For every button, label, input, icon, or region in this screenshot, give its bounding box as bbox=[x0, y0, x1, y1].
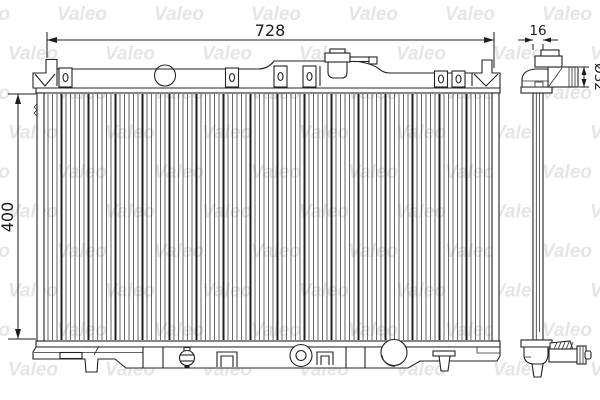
drain-plug-circle bbox=[180, 351, 195, 366]
radiator-technical-drawing: ValeoValeoValeoValeoValeoValeoValeoValeo… bbox=[0, 0, 600, 400]
side-bottom-dome bbox=[524, 347, 548, 364]
valeo-watermark: Valeo bbox=[0, 4, 10, 25]
side-core bbox=[533, 93, 543, 340]
arrowhead-top bbox=[582, 67, 587, 75]
right-side-plate bbox=[492, 93, 499, 341]
inlet-pipe bbox=[548, 67, 578, 87]
hose-clamp bbox=[435, 71, 448, 87]
valeo-watermark: Valeo bbox=[590, 360, 600, 381]
filler-cap-top bbox=[330, 49, 345, 53]
valeo-watermark: Valeo bbox=[251, 162, 301, 183]
valeo-watermark: Valeo bbox=[0, 320, 10, 341]
hose-clamp bbox=[59, 68, 72, 87]
valeo-watermark: Valeo bbox=[8, 360, 58, 381]
valeo-watermark: Valeo bbox=[299, 202, 349, 223]
valeo-watermark: Valeo bbox=[445, 162, 495, 183]
valeo-watermark: Valeo bbox=[154, 4, 204, 25]
valeo-watermark: Valeo bbox=[542, 162, 592, 183]
arrowhead-top bbox=[15, 94, 21, 104]
valeo-watermark: Valeo bbox=[396, 44, 446, 65]
valeo-watermark: Valeo bbox=[105, 44, 155, 65]
arrowhead-left bbox=[47, 37, 57, 43]
valeo-watermark: Valeo bbox=[202, 202, 252, 223]
valeo-watermark: Valeo bbox=[105, 281, 155, 302]
bottom-bracket-bar bbox=[433, 351, 455, 356]
valeo-watermark: Valeo bbox=[0, 241, 10, 262]
valeo-watermark: Valeo bbox=[57, 320, 107, 341]
valeo-watermark: Valeo bbox=[590, 202, 600, 223]
valeo-watermark: Valeo bbox=[8, 281, 58, 302]
valeo-watermark: Valeo bbox=[542, 320, 592, 341]
valeo-watermark: Valeo bbox=[590, 123, 600, 144]
arrowhead-right bbox=[484, 37, 494, 43]
valeo-watermark: Valeo bbox=[251, 241, 301, 262]
pipe-diameter-label: Ø32 bbox=[591, 63, 600, 91]
side-top-flange bbox=[521, 87, 552, 93]
valeo-watermark: Valeo bbox=[105, 123, 155, 144]
valeo-watermark: Valeo bbox=[542, 4, 592, 25]
valeo-watermark: Valeo bbox=[202, 123, 252, 144]
filler-cap-body bbox=[325, 53, 350, 62]
valeo-watermark: Valeo bbox=[348, 320, 398, 341]
valeo-watermark: Valeo bbox=[57, 4, 107, 25]
side-top-dome bbox=[522, 69, 549, 87]
valeo-watermark: Valeo bbox=[299, 281, 349, 302]
height-dimension-label: 400 bbox=[0, 202, 17, 233]
valeo-watermark: Valeo bbox=[445, 4, 495, 25]
side-cap-top bbox=[541, 50, 559, 56]
width-dimension-label: 728 bbox=[255, 21, 286, 40]
valeo-watermark: Valeo bbox=[348, 162, 398, 183]
outlet-pipe-nub bbox=[585, 351, 591, 359]
outlet-pipe bbox=[549, 349, 579, 362]
valeo-watermark: Valeo bbox=[57, 162, 107, 183]
valeo-watermark: Valeo bbox=[590, 44, 600, 65]
valeo-watermark: Valeo bbox=[348, 241, 398, 262]
hose-clamp bbox=[303, 66, 316, 87]
side-bottom-flange bbox=[521, 340, 552, 347]
valeo-watermark: Valeo bbox=[251, 320, 301, 341]
front-view: 728 400 bbox=[0, 21, 500, 372]
side-bottom-tab bbox=[532, 364, 543, 377]
valeo-watermark: Valeo bbox=[202, 281, 252, 302]
valeo-watermark: Valeo bbox=[202, 44, 252, 65]
overflow-tube bbox=[350, 57, 370, 62]
hose-clamp bbox=[452, 71, 465, 87]
overflow-tube-tip bbox=[369, 57, 377, 64]
filler-neck-body bbox=[328, 62, 347, 78]
valeo-watermark: Valeo bbox=[105, 202, 155, 223]
left-side-plate bbox=[37, 93, 44, 341]
valeo-watermark: Valeo bbox=[348, 4, 398, 25]
side-cap-body bbox=[535, 56, 562, 67]
hose-clamp bbox=[226, 68, 239, 87]
arrowhead-bottom bbox=[15, 329, 21, 339]
bottom-bracket-bar bbox=[60, 353, 82, 359]
hose-clamp bbox=[274, 66, 287, 87]
valeo-watermark: Valeo bbox=[445, 320, 495, 341]
valeo-watermark: Valeo bbox=[542, 241, 592, 262]
sensor-port-outer bbox=[290, 345, 312, 367]
valeo-watermark: Valeo bbox=[299, 123, 349, 144]
valeo-watermark: Valeo bbox=[0, 162, 10, 183]
drain-plug-nub bbox=[185, 365, 190, 369]
bottom-bracket-tab bbox=[439, 356, 450, 371]
valeo-watermark: Valeo bbox=[8, 123, 58, 144]
valeo-watermark: Valeo bbox=[445, 241, 495, 262]
valeo-watermark: Valeo bbox=[590, 281, 600, 302]
valeo-watermark: Valeo bbox=[57, 241, 107, 262]
bottom-header-plate bbox=[36, 341, 500, 347]
thickness-dimension-label: 16 bbox=[529, 23, 546, 39]
